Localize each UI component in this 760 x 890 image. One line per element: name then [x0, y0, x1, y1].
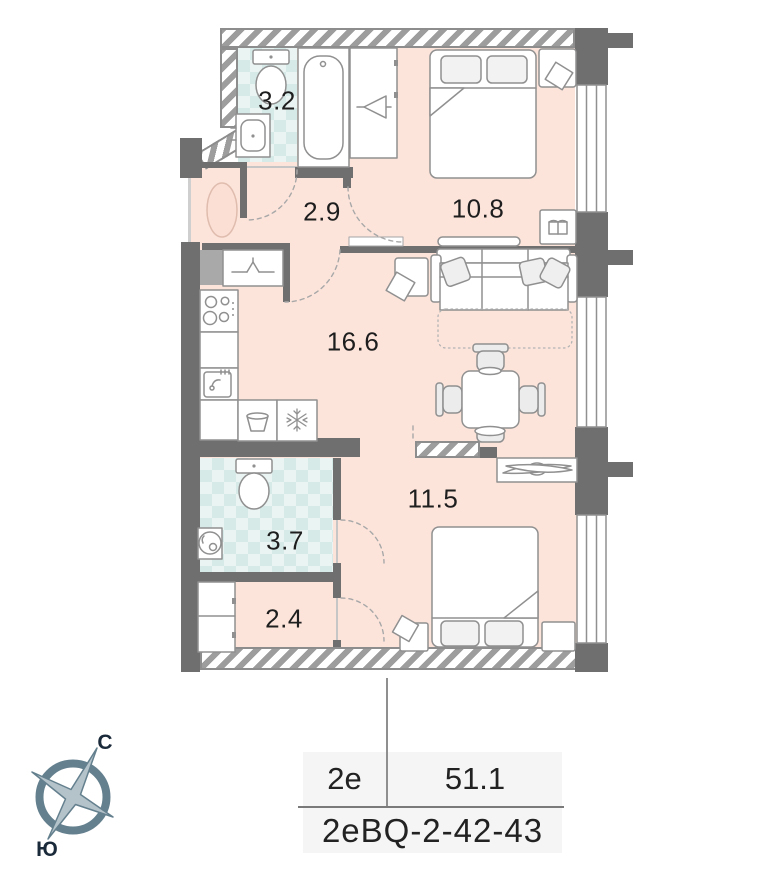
exterior-wall-bottom	[200, 647, 578, 670]
wall-under-bath2	[181, 572, 333, 582]
exterior-wall-top	[220, 28, 575, 48]
floor-plan-canvas: 3.2 2.9 10.8 16.6 3.7 2.4 11.5 С Ю 2e 51…	[0, 0, 760, 890]
window-icon	[577, 85, 606, 212]
wall-bath2-right-c	[333, 640, 341, 647]
wall-bath2-right-b	[333, 563, 341, 598]
compass-rose-icon	[32, 748, 113, 839]
layout-code-cell: 2e	[303, 752, 386, 806]
wall-entry-left-upper	[180, 138, 202, 178]
wall-nook-v	[283, 247, 290, 302]
window-icon	[577, 297, 606, 427]
hall2-door-line	[336, 598, 338, 640]
wall-living-lower-hatch	[415, 441, 480, 458]
wall-hall-living	[340, 246, 575, 253]
room-area-label: 3.2	[258, 86, 296, 117]
wall-nook-h	[202, 243, 290, 250]
room-area-label: 11.5	[408, 484, 459, 515]
compass-south-label: Ю	[36, 838, 58, 862]
wall-living-lower	[181, 438, 360, 457]
room-area-label: 2.9	[303, 197, 341, 228]
room-area-label: 16.6	[327, 327, 380, 358]
room-area-label: 2.4	[265, 604, 303, 635]
wall-right-pier-2	[575, 427, 608, 515]
wall-left-lower	[181, 440, 200, 672]
wall-bath2-right-a	[333, 458, 341, 520]
floor-entry-nook	[188, 168, 238, 247]
bath2-door-line	[336, 520, 338, 563]
wall-stub-middle	[608, 250, 633, 265]
kitchen-duct	[200, 250, 223, 285]
entry-door-line	[188, 178, 191, 242]
room-area-label: 3.7	[266, 526, 304, 557]
wall-right-pier-1	[575, 212, 608, 297]
window-icon	[577, 515, 606, 643]
room-area-label: 10.8	[452, 194, 505, 225]
wall-left-middle	[181, 242, 200, 440]
wall-bath-top-bottom-v	[240, 162, 247, 218]
wall-under-tub-v	[343, 172, 351, 188]
exterior-wall-left-top	[220, 48, 238, 128]
total-area-cell: 51.1	[388, 752, 562, 806]
compass-north-label: С	[97, 731, 112, 755]
wall-stub-top	[603, 33, 633, 48]
wall-right-bottom-corner	[575, 643, 608, 672]
bathroom-bottom-tiles	[200, 458, 333, 577]
bath-top-door-line	[247, 166, 297, 168]
unit-code-cell: 2eBQ-2-42-43	[303, 808, 562, 853]
wall-stub-lower	[608, 462, 633, 477]
table-leader-line	[386, 678, 388, 752]
table-cell-divider	[386, 752, 388, 806]
wall-living-lower-notch	[480, 447, 497, 458]
